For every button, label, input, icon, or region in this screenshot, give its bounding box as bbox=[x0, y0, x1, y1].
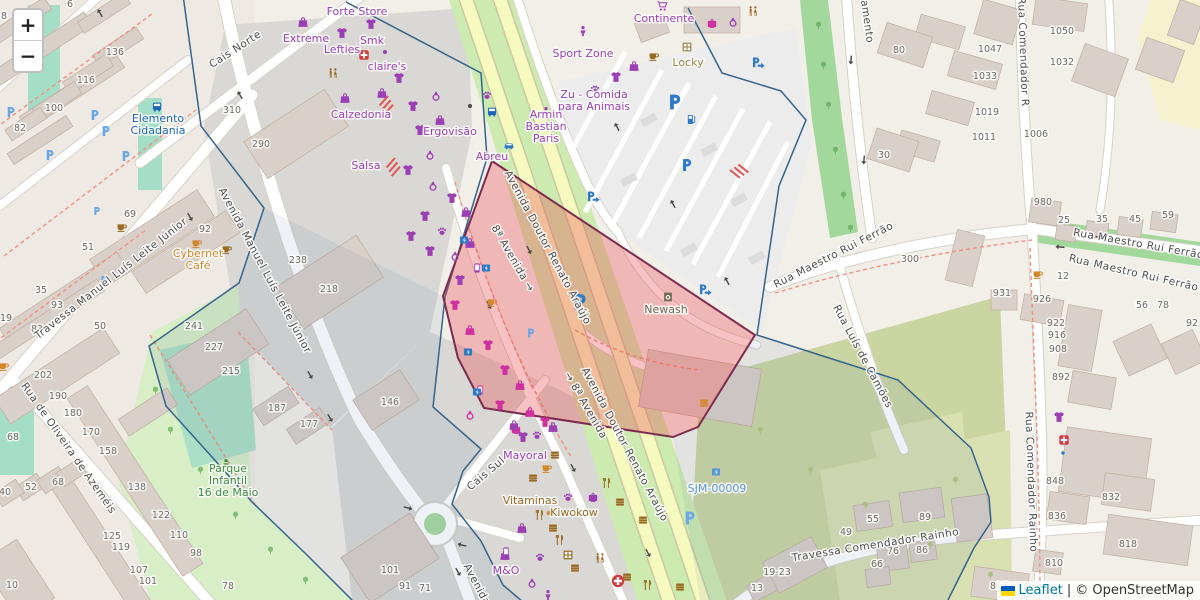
poi-label: Locky bbox=[672, 56, 704, 69]
house-number: 836 bbox=[1048, 511, 1066, 522]
burger-icon bbox=[639, 516, 647, 523]
house-number: 1050 bbox=[1050, 26, 1074, 37]
poi-label: Kiwokow bbox=[550, 506, 598, 519]
house-number: 926 bbox=[1033, 294, 1051, 305]
poi-label: Forte Store bbox=[327, 5, 388, 18]
house-number: 101 bbox=[139, 576, 157, 587]
house-number: 100 bbox=[45, 103, 63, 114]
house-number: 66 bbox=[871, 559, 883, 570]
house-number: 68 bbox=[52, 477, 64, 488]
house-number: 59 bbox=[1162, 210, 1174, 221]
ukraine-flag-icon bbox=[1001, 586, 1015, 596]
house-number: 810 bbox=[1045, 558, 1063, 569]
house-number: 908 bbox=[1049, 344, 1067, 355]
house-number: 35 bbox=[35, 285, 47, 296]
house-number: 241 bbox=[185, 321, 203, 332]
house-number: 6 bbox=[67, 0, 73, 10]
house-number: 71 bbox=[419, 583, 431, 594]
house-number: 931 bbox=[993, 288, 1011, 299]
burger-icon bbox=[676, 583, 684, 590]
poi-label: claire's bbox=[368, 60, 407, 73]
charge-icon bbox=[482, 264, 490, 271]
washer-icon bbox=[664, 293, 672, 302]
burger-icon bbox=[571, 564, 579, 571]
house-number: 119 bbox=[112, 542, 130, 553]
house-number: 202 bbox=[34, 370, 52, 381]
house-number: 848 bbox=[1046, 476, 1064, 487]
poi-label: SJM-00009 bbox=[688, 482, 747, 495]
poi-label: Salsa bbox=[351, 159, 380, 172]
house-number: 51 bbox=[82, 242, 94, 253]
house-number: 1032 bbox=[1050, 57, 1074, 68]
dot-icon bbox=[383, 50, 387, 54]
openstreetmap-link[interactable]: © OpenStreetMap bbox=[1075, 583, 1194, 598]
house-number: 78 bbox=[222, 581, 234, 592]
house-number: 69 bbox=[124, 209, 136, 220]
dot-icon bbox=[468, 104, 472, 108]
phone-icon bbox=[503, 547, 508, 556]
house-number: 916 bbox=[1048, 330, 1066, 341]
house-number: 832 bbox=[1102, 492, 1120, 503]
house-number: 290 bbox=[252, 139, 270, 150]
house-number: 1047 bbox=[978, 44, 1002, 55]
house-number: 218 bbox=[320, 284, 338, 295]
house-number: 98 bbox=[190, 548, 202, 559]
house-number: 92 bbox=[199, 224, 211, 235]
house-number: 107 bbox=[130, 565, 148, 576]
phone-icon bbox=[474, 263, 479, 272]
house-number: 180 bbox=[64, 408, 82, 419]
burger-icon bbox=[616, 498, 624, 505]
house-number: 80 bbox=[893, 45, 905, 56]
house-number: 138 bbox=[128, 482, 146, 493]
zoom-control: + − bbox=[12, 8, 44, 73]
poi-label: Mayoral bbox=[503, 449, 547, 462]
map-viewport: 6813611610082310290238218146187177241227… bbox=[0, 0, 1200, 600]
house-number: 215 bbox=[222, 366, 240, 377]
house-number: 136 bbox=[106, 47, 124, 58]
house-number: 170 bbox=[82, 427, 100, 438]
house-number: 35 bbox=[1096, 214, 1108, 225]
house-number: 190 bbox=[49, 391, 67, 402]
pharm-icon bbox=[1059, 435, 1068, 444]
poi-label: Ergovisão bbox=[423, 125, 477, 138]
poi-label: Sport Zone bbox=[552, 47, 613, 60]
house-number: 110 bbox=[170, 530, 188, 541]
house-number: 45 bbox=[1129, 214, 1141, 225]
house-number: 19-23 bbox=[763, 567, 791, 578]
house-number: 1006 bbox=[1024, 129, 1048, 140]
house-number: 40 bbox=[0, 487, 11, 498]
house-number: 89 bbox=[919, 512, 931, 523]
leaflet-link[interactable]: Leaflet bbox=[1019, 583, 1063, 598]
charge-icon bbox=[473, 388, 481, 395]
zoom-in-button[interactable]: + bbox=[14, 10, 42, 41]
house-number: 980 bbox=[1034, 197, 1052, 208]
house-number: 49 bbox=[840, 527, 852, 538]
house-number: 1033 bbox=[973, 71, 997, 82]
burger-icon bbox=[549, 524, 557, 531]
house-number: 92 bbox=[1186, 318, 1198, 329]
attribution-separator: | bbox=[1067, 583, 1071, 598]
house-number: 86 bbox=[916, 545, 928, 556]
house-number: 187 bbox=[268, 403, 286, 414]
poi-label: M&O bbox=[493, 564, 520, 577]
pharm-icon bbox=[359, 50, 368, 59]
locker-icon bbox=[564, 551, 573, 560]
burger-icon bbox=[551, 451, 559, 458]
house-number: 158 bbox=[99, 446, 117, 457]
house-number: 238 bbox=[289, 255, 307, 266]
house-number: 177 bbox=[300, 419, 318, 430]
charge-icon bbox=[712, 468, 720, 475]
house-number: 82 bbox=[14, 123, 26, 134]
house-number: 19 bbox=[0, 313, 12, 324]
house-number: 122 bbox=[152, 510, 170, 521]
house-number: 10 bbox=[6, 580, 18, 591]
map-canvas[interactable]: 6813611610082310290238218146187177241227… bbox=[0, 0, 1200, 600]
house-number: 30 bbox=[878, 150, 890, 161]
poi-label: Abreu bbox=[476, 150, 509, 163]
zoom-out-button[interactable]: − bbox=[14, 41, 42, 71]
poi-label: Lefties bbox=[324, 43, 361, 56]
house-number: 91 bbox=[399, 581, 411, 592]
poi-label: ElementoCidadania bbox=[131, 112, 186, 137]
house-number: 25 bbox=[1058, 215, 1070, 226]
poi-label: Calzedonia bbox=[331, 108, 392, 121]
house-number: 56 bbox=[1136, 300, 1148, 311]
dot-icon bbox=[1061, 451, 1064, 454]
poi-label: Smk bbox=[360, 34, 385, 47]
poi-label: Continente bbox=[634, 12, 695, 25]
house-number: 55 bbox=[867, 514, 879, 525]
house-number: 52 bbox=[25, 482, 37, 493]
locker-icon bbox=[683, 43, 692, 52]
crosscircle-icon bbox=[612, 575, 624, 587]
burger-icon bbox=[700, 399, 708, 406]
house-number: 146 bbox=[381, 397, 399, 408]
house-number: 892 bbox=[1052, 372, 1070, 383]
house-number: 1019 bbox=[975, 107, 999, 118]
burger-icon bbox=[529, 474, 537, 481]
house-number: 300 bbox=[901, 254, 919, 265]
house-number: 125 bbox=[103, 531, 121, 542]
house-number: 8 bbox=[1, 11, 7, 22]
house-number: 818 bbox=[1119, 539, 1137, 550]
burger-icon bbox=[623, 573, 631, 580]
house-number: 13 bbox=[751, 583, 763, 594]
house-number: 310 bbox=[223, 105, 241, 116]
poi-label: Newash bbox=[644, 303, 687, 316]
poi-label: Zu - Comidapara Animais bbox=[558, 88, 631, 113]
house-number: 78 bbox=[1157, 300, 1169, 311]
attribution-bar: Leaflet | © OpenStreetMap bbox=[997, 581, 1200, 600]
house-number: 68 bbox=[7, 432, 19, 443]
house-number: 50 bbox=[94, 321, 106, 332]
house-number: 1011 bbox=[972, 132, 996, 143]
charge-icon bbox=[460, 236, 468, 243]
house-number: 12 bbox=[1057, 271, 1069, 282]
poi-label: Extreme bbox=[283, 32, 330, 45]
charge-icon bbox=[464, 348, 472, 355]
house-number: 116 bbox=[77, 75, 95, 86]
house-number: 101 bbox=[381, 565, 399, 576]
house-number: 227 bbox=[205, 342, 223, 353]
house-number: 922 bbox=[1047, 318, 1065, 329]
